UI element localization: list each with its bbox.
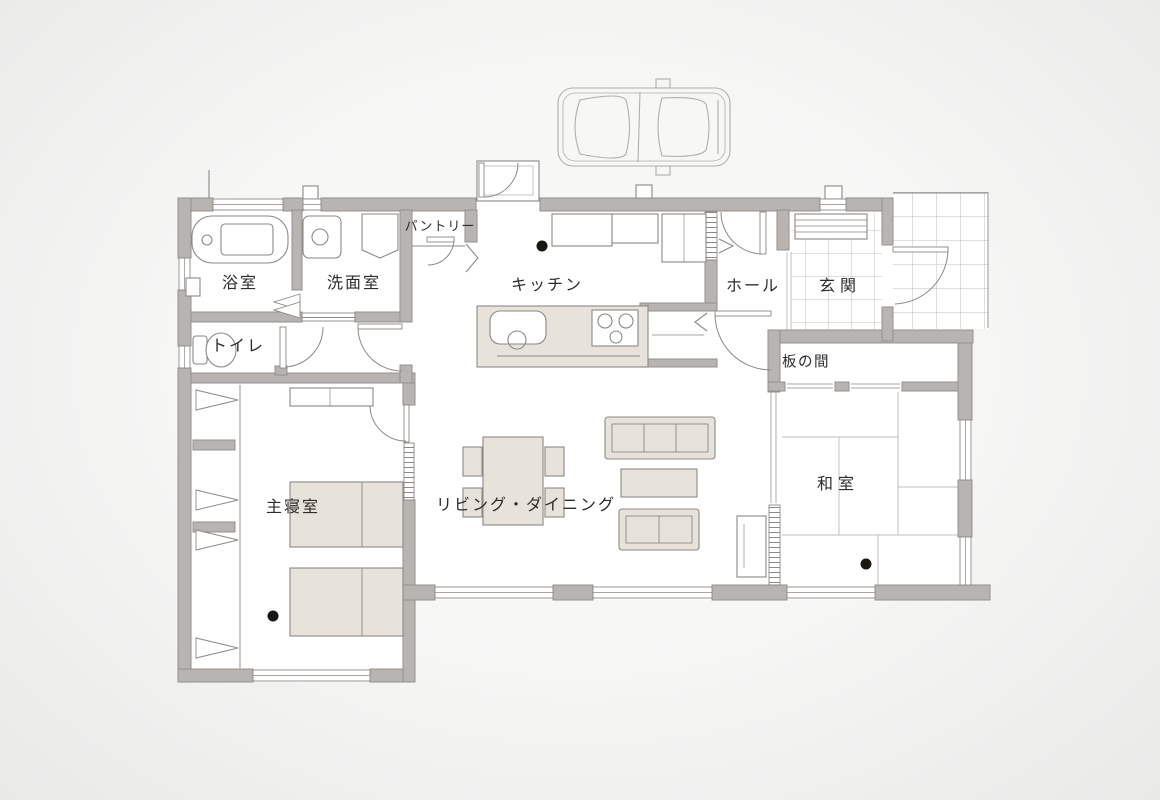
ceiling-light-dot (861, 559, 872, 570)
room-label-bathroom: 浴室 (222, 269, 258, 293)
washing-machine (362, 214, 398, 258)
refrigerator (662, 214, 706, 262)
room-label-wood-floor-room: 板の間 (782, 351, 830, 372)
floor-plan-drawing (0, 0, 1160, 800)
sofa-large (605, 417, 715, 459)
car-top-view-icon (558, 79, 730, 175)
shower-control (186, 278, 200, 296)
washbasin (303, 216, 341, 258)
entrance-porch-tiles (893, 192, 989, 329)
bedroom-sliding-door (404, 443, 414, 500)
window (960, 420, 971, 480)
back-door-porch (477, 161, 539, 201)
window (179, 346, 190, 368)
room-label-pantry: パントリー (405, 216, 476, 235)
window (593, 587, 712, 598)
room-label-japanese-room: 和室 (817, 470, 859, 494)
ceiling-light-dot (268, 611, 279, 622)
stove (592, 310, 638, 346)
room-label-living-dining: リビング・ダイニング (436, 491, 616, 515)
dresser (290, 388, 373, 406)
room-label-hall: ホール (726, 272, 780, 296)
kitchen-hall-sliding-door (705, 212, 717, 260)
window (435, 587, 553, 598)
window (960, 537, 971, 585)
window (213, 199, 283, 210)
room-label-kitchen: キッチン (511, 271, 583, 295)
bed (290, 568, 403, 636)
room-label-washroom: 洗面室 (327, 269, 381, 293)
washitsu-sliding-door (769, 505, 780, 585)
ceiling-light-dot (537, 241, 548, 252)
room-label-entrance: 玄関 (819, 272, 861, 296)
tv-board (737, 516, 766, 577)
room-label-toilet: トイレ (211, 332, 265, 356)
shoe-cabinet (795, 214, 867, 239)
window (787, 587, 875, 598)
sofa-small (619, 509, 699, 550)
window (820, 199, 846, 210)
kitchen-counter (552, 214, 658, 246)
kitchen-island (477, 306, 648, 367)
window (303, 199, 321, 210)
room-label-master-bedroom: 主寝室 (266, 493, 320, 517)
coffee-table (621, 469, 697, 497)
window (253, 670, 370, 681)
floor-plan: 浴室 洗面室 トイレ パントリー キッチン ホール 玄関 板の間 和室 主寝室 … (0, 0, 1160, 800)
washroom-sliding-door (302, 313, 355, 321)
bathtub (192, 216, 288, 263)
